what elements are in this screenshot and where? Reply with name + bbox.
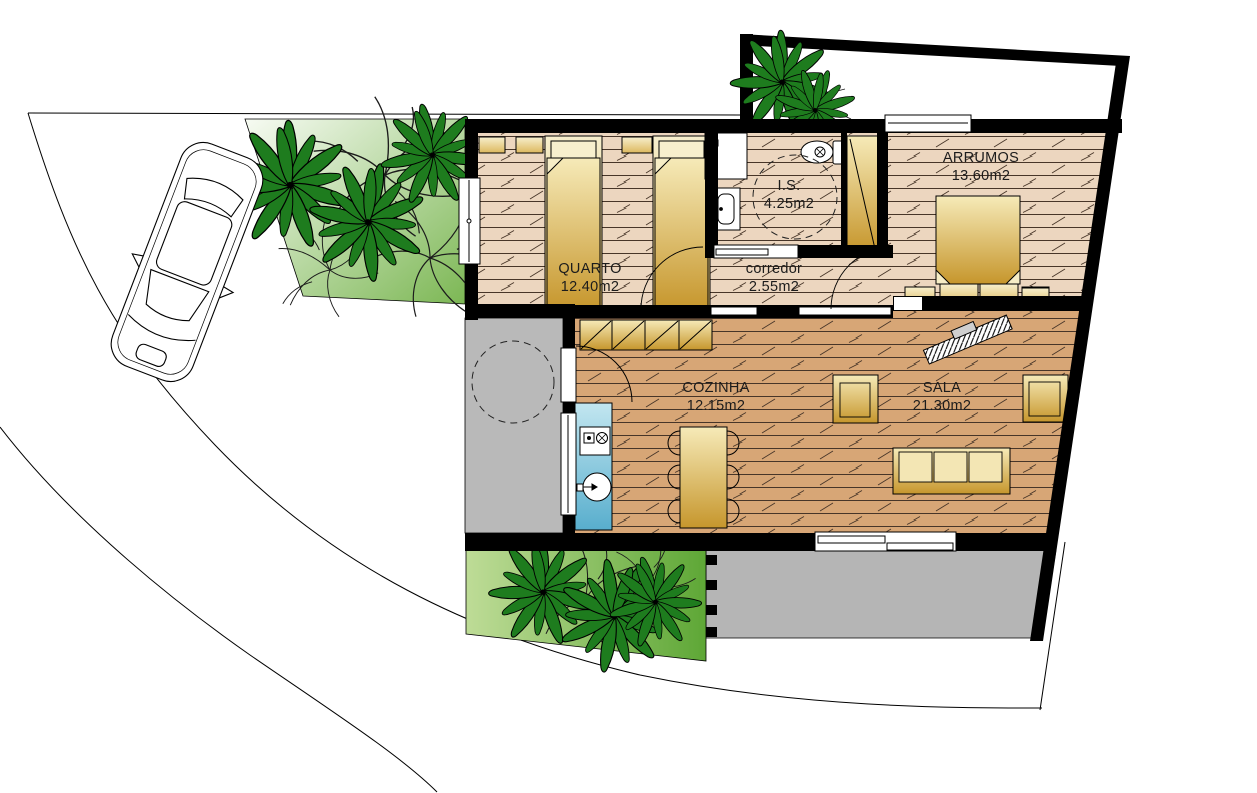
nightstand [516, 137, 543, 153]
room-label-is: I.S. 4.25m2 [764, 177, 814, 213]
stove-icon [580, 427, 610, 455]
room-area: 13.60m2 [943, 167, 1019, 185]
wardrobe [847, 136, 878, 252]
patio-gray [465, 318, 563, 533]
room-name: ARRUMOS [943, 149, 1019, 167]
room-area: 12.40m2 [558, 278, 621, 296]
room-name: I.S. [764, 177, 814, 195]
room-name: corredor [746, 260, 802, 278]
toilet [801, 141, 843, 164]
room-label-arrumos: ARRUMOS 13.60m2 [943, 149, 1019, 185]
window-bedroom-left [459, 178, 480, 264]
room-area: 12.15m2 [682, 397, 749, 415]
kitchen-counter [575, 403, 612, 530]
garden-bottom [466, 537, 711, 693]
sliding-door-terrace [815, 532, 956, 551]
room-label-quarto: QUARTO 12.40m2 [558, 260, 621, 296]
floor-plan-canvas: QUARTO 12.40m2 I.S. 4.25m2 corredor 2.55… [0, 0, 1257, 793]
floor-plan-drawing [0, 0, 1257, 793]
window-kitchen-left [561, 413, 576, 515]
room-area: 4.25m2 [764, 195, 814, 213]
terrace-gray [706, 550, 1056, 638]
room-name: COZINHA [682, 379, 749, 397]
pocket-door-bathroom [714, 245, 798, 258]
room-area: 2.55m2 [746, 278, 802, 296]
room-name: SALA [913, 379, 972, 397]
kitchen-cabinets [580, 320, 712, 350]
room-area: 21.30m2 [913, 397, 972, 415]
room-name: QUARTO [558, 260, 621, 278]
car-icon [94, 132, 280, 393]
armchair [1023, 375, 1068, 422]
single-bed [653, 136, 710, 310]
window-arrumos-top [885, 115, 971, 132]
double-bed [936, 196, 1020, 305]
room-label-sala: SALA 21.30m2 [913, 379, 972, 415]
nightstand [479, 137, 505, 153]
room-label-cozinha: COZINHA 12.15m2 [682, 379, 749, 415]
room-label-corredor: corredor 2.55m2 [746, 260, 802, 296]
armchair [833, 375, 878, 423]
nightstand [622, 137, 652, 153]
sofa [893, 448, 1010, 494]
